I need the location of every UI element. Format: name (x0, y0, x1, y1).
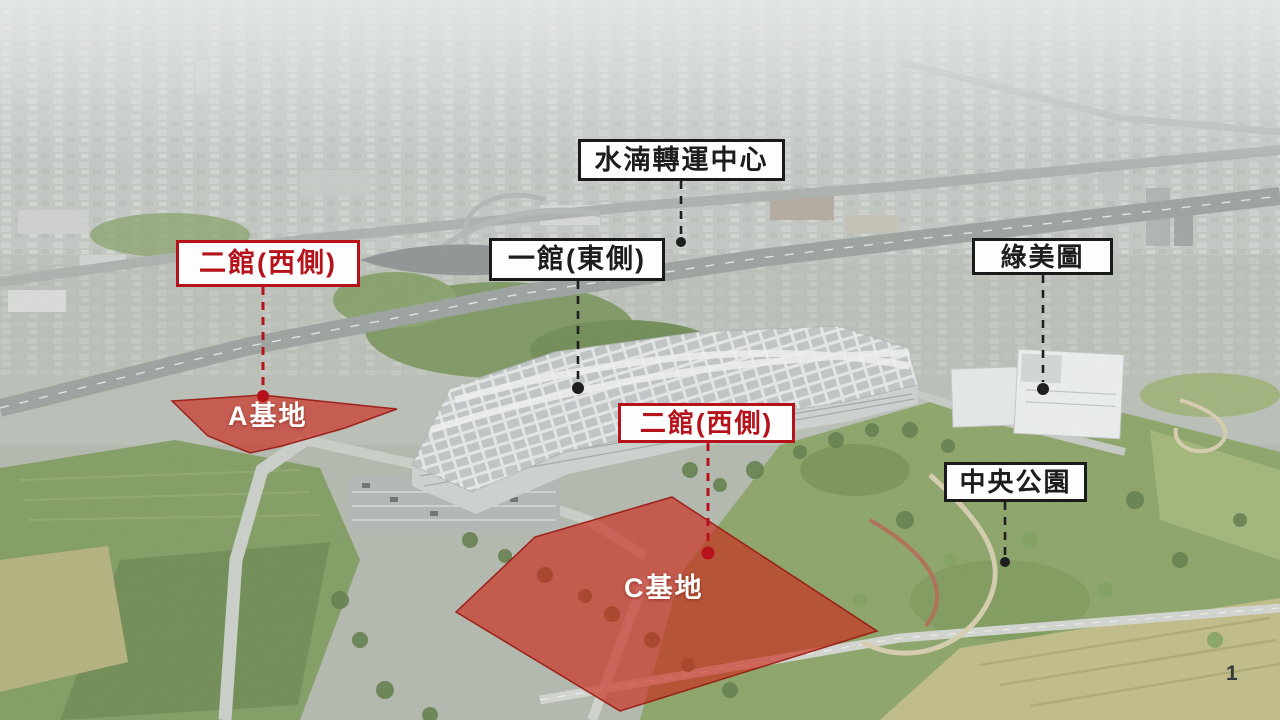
label-hall2-west-upper: 二館(西側) (176, 240, 360, 287)
leader-dot-shuinan (676, 237, 686, 247)
label-shuinan-transfer-center: 水湳轉運中心 (578, 139, 785, 181)
site-a-label: A基地 (228, 403, 308, 430)
label-central-park: 中央公園 (944, 462, 1087, 502)
label-hall2-west-lower: 二館(西側) (618, 403, 795, 443)
annotated-aerial-map: 水湳轉運中心 二館(西側) 一館(東側) 綠美圖 二館(西側) 中央公園 A基地… (0, 0, 1280, 720)
label-hall1-east: 一館(東側) (489, 238, 665, 281)
site-c-overlay (456, 497, 877, 711)
page-number: 1 (1226, 662, 1238, 686)
leader-dot-hall2-west-lower (702, 547, 715, 560)
label-green-museumbrary: 綠美圖 (972, 238, 1113, 275)
annotation-overlay (0, 0, 1280, 720)
leader-dot-central-park (1000, 557, 1010, 567)
site-c-label: C基地 (624, 575, 704, 602)
leader-dot-green-museum (1037, 383, 1049, 395)
leader-dot-hall1-east (572, 382, 584, 394)
